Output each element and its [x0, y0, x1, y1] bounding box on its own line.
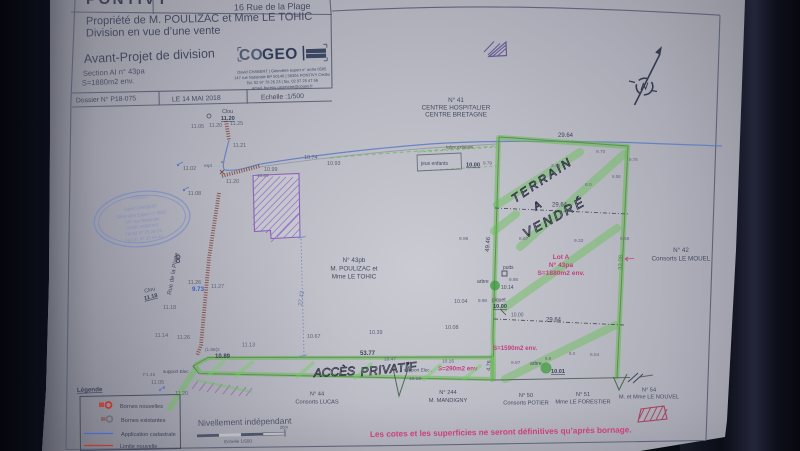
svg-text:9.98: 9.98 — [509, 277, 518, 282]
svg-text:29.64: 29.64 — [546, 318, 562, 324]
svg-text:11.02: 11.02 — [183, 166, 196, 172]
svg-text:support Elec .: support Elec . — [404, 368, 432, 373]
svg-text:support Elec: support Elec — [163, 369, 189, 374]
svg-text:11.14: 11.14 — [155, 333, 168, 339]
svg-text:9.33: 9.33 — [574, 238, 584, 244]
svg-text:10.47: 10.47 — [384, 357, 396, 363]
svg-text:9.73: 9.73 — [192, 286, 205, 293]
svg-text:29.64: 29.64 — [558, 133, 574, 139]
svg-text:CENTRE BRETAGNE: CENTRE BRETAGNE — [425, 112, 487, 119]
svg-text:8.67: 8.67 — [519, 236, 529, 242]
svg-text:11.05: 11.05 — [151, 380, 164, 386]
svg-text:10.89: 10.89 — [257, 173, 269, 178]
svg-text:9.98: 9.98 — [478, 298, 487, 303]
svg-text:10.08: 10.08 — [445, 325, 459, 331]
svg-text:Consorts LUCAS: Consorts LUCAS — [295, 400, 339, 406]
svg-text:espt: espt — [204, 163, 213, 168]
svg-text:Limite nouvelle: Limite nouvelle — [120, 444, 157, 450]
svg-text:(1.88(2: (1.88(2 — [205, 347, 220, 352]
svg-text:Lot A: Lot A — [553, 254, 570, 261]
svg-text:9.8: 9.8 — [545, 356, 552, 361]
svg-text:Application cadastrale: Application cadastrale — [121, 432, 176, 438]
svg-text:arbre: arbre — [477, 279, 489, 285]
svg-text:N° 54: N° 54 — [642, 388, 656, 394]
svg-text:M. MANDIGNY: M. MANDIGNY — [429, 398, 468, 404]
svg-text:F1.45: F1.45 — [143, 372, 156, 378]
svg-text:53.77: 53.77 — [360, 351, 376, 357]
svg-text:9.96: 9.96 — [459, 236, 469, 242]
svg-text:9.58: 9.58 — [612, 174, 621, 179]
svg-text:9.70: 9.70 — [596, 149, 606, 155]
svg-text:N° 51: N° 51 — [576, 392, 590, 398]
svg-text:CENTRE HOSPITALIER: CENTRE HOSPITALIER — [422, 105, 491, 112]
svg-text:11.18: 11.18 — [163, 305, 176, 311]
svg-text:9.78: 9.78 — [629, 157, 638, 162]
svg-text:9.58: 9.58 — [620, 236, 630, 242]
svg-text:11.20: 11.20 — [209, 123, 222, 129]
svg-text:N° 50: N° 50 — [519, 393, 533, 399]
svg-text:11.26: 11.26 — [177, 335, 190, 341]
svg-text:puits: puits — [503, 265, 514, 271]
svg-text:11.20: 11.20 — [226, 179, 239, 185]
svg-text:11.27: 11.27 — [211, 284, 224, 290]
svg-text:10.00: 10.00 — [511, 313, 524, 319]
svg-text:10.01: 10.01 — [551, 369, 565, 375]
svg-text:10.89: 10.89 — [215, 354, 231, 360]
svg-text:11.20: 11.20 — [175, 391, 188, 397]
svg-text:jeux enfants: jeux enfants — [420, 161, 448, 167]
svg-text:10.39: 10.39 — [369, 330, 383, 336]
svg-text:N° 44: N° 44 — [310, 392, 324, 398]
svg-text:Clou: Clou — [222, 109, 233, 115]
svg-text:piquet: piquet — [492, 298, 506, 304]
svg-text:10.04: 10.04 — [454, 299, 468, 305]
svg-text:Mme LE FORESTIER: Mme LE FORESTIER — [555, 400, 610, 406]
svg-text:Mme LE TOHIC: Mme LE TOHIC — [332, 274, 377, 281]
svg-text:10.14: 10.14 — [501, 285, 514, 291]
svg-text:ACCÈS: ACCÈS — [312, 363, 355, 380]
svg-text:M. et Mme LE NOUVEL: M. et Mme LE NOUVEL — [619, 395, 679, 401]
svg-text:M. POULIZAC et: M. POULIZAC et — [330, 266, 377, 273]
svg-text:Légende: Légende — [77, 386, 103, 394]
svg-text:10.67: 10.67 — [307, 334, 321, 340]
svg-text:11.25: 11.25 — [230, 121, 243, 127]
svg-text:9.87: 9.87 — [511, 360, 521, 366]
svg-text:arbre: arbre — [530, 361, 542, 367]
svg-text:9.3: 9.3 — [569, 351, 576, 356]
svg-text:6.0: 6.0 — [585, 182, 592, 188]
svg-text:Consorts POTIER: Consorts POTIER — [503, 401, 549, 407]
svg-text:N° 42: N° 42 — [673, 246, 689, 254]
svg-text:N° 43pa: N° 43pa — [549, 261, 574, 269]
svg-text:Consorts LE MOUEL: Consorts LE MOUEL — [652, 256, 711, 263]
svg-text:Bornes existantes: Bornes existantes — [121, 418, 166, 424]
svg-text:Echelle 1/500: Echelle 1/500 — [224, 438, 252, 444]
svg-text:CO: CO — [239, 46, 263, 64]
svg-text:10.93: 10.93 — [327, 161, 341, 167]
svg-text:GEO: GEO — [262, 45, 298, 63]
svg-text:10.18: 10.18 — [409, 376, 421, 382]
svg-text:49.46: 49.46 — [485, 236, 492, 252]
svg-text:20m: 20m — [280, 425, 289, 430]
svg-text:11.05: 11.05 — [191, 124, 204, 130]
svg-text:2.48: 2.48 — [551, 163, 561, 169]
svg-text:11.21: 11.21 — [233, 143, 246, 149]
svg-text:S=1590m2 env.: S=1590m2 env. — [493, 345, 537, 352]
svg-text:Bornes nouvelles: Bornes nouvelles — [120, 404, 163, 410]
svg-text:N° 41: N° 41 — [448, 96, 464, 104]
svg-text:N° 43pb: N° 43pb — [343, 256, 366, 264]
svg-text:10.00: 10.00 — [466, 163, 480, 169]
svg-text:10.16: 10.16 — [442, 359, 454, 365]
svg-text:11.13: 11.13 — [242, 343, 255, 349]
svg-text:33.08: 33.08 — [618, 254, 625, 270]
svg-text:N° 244: N° 244 — [439, 390, 456, 396]
svg-text:9.79: 9.79 — [483, 161, 492, 166]
svg-text:10.74: 10.74 — [304, 155, 318, 161]
svg-text:11.08: 11.08 — [188, 191, 201, 197]
svg-text:PONTIVY: PONTIVY — [86, 0, 169, 8]
svg-text:S=1880m2 env.: S=1880m2 env. — [538, 270, 585, 277]
svg-text:6.54: 6.54 — [590, 352, 600, 358]
